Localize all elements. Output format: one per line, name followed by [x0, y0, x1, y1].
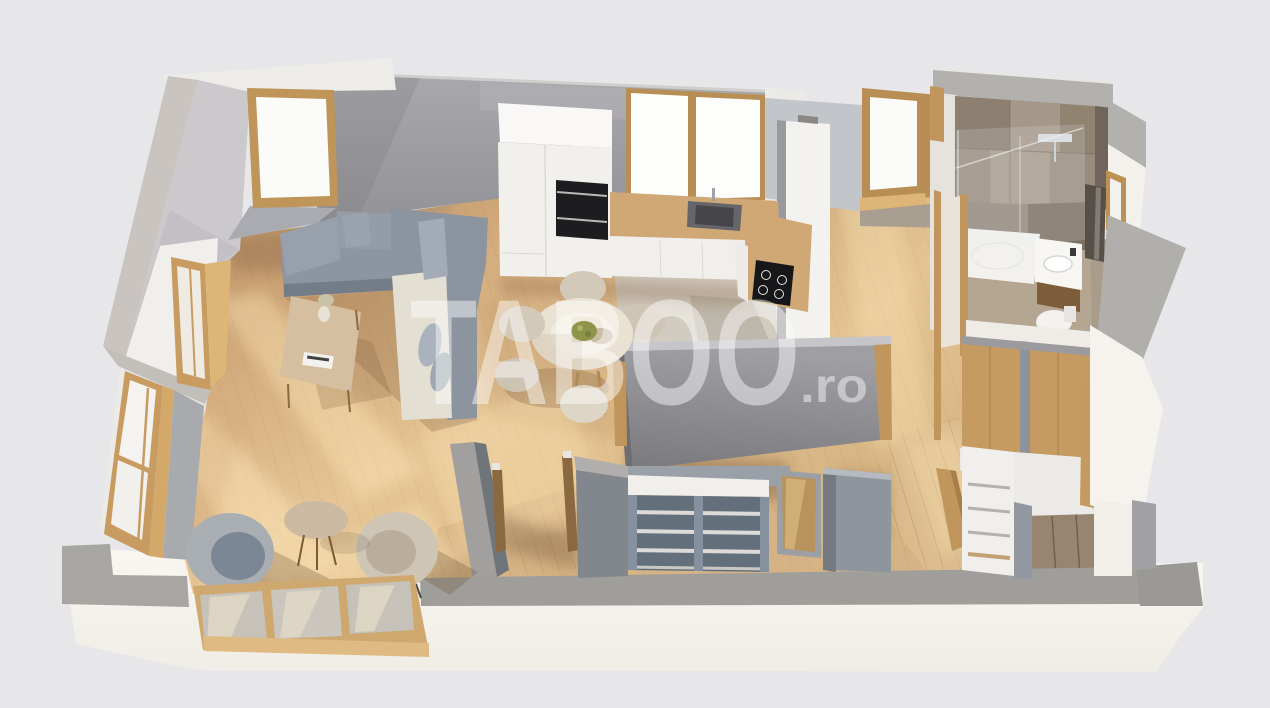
- svg-text:.ro: .ro: [800, 360, 868, 413]
- svg-text:TABOO: TABOO: [410, 268, 800, 436]
